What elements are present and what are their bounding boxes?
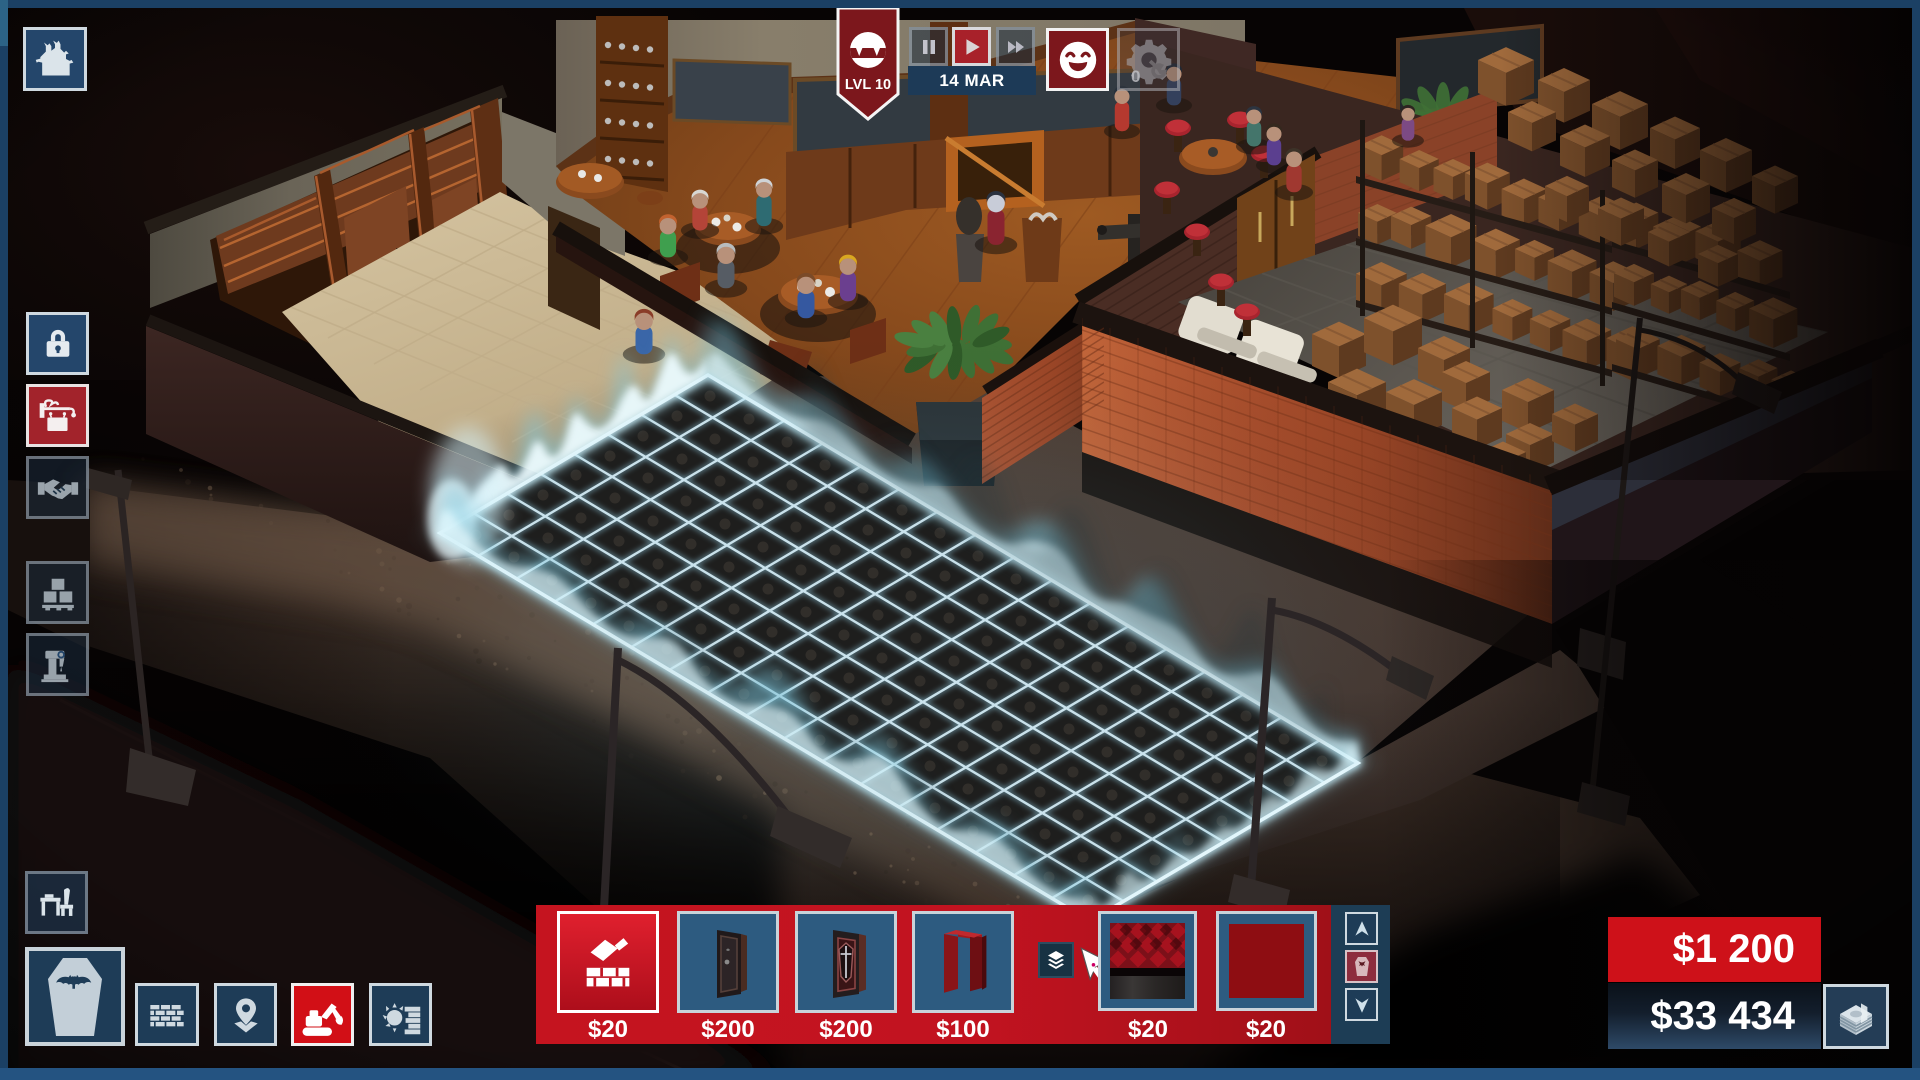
svg-text:LVL 10: LVL 10 <box>845 77 891 93</box>
